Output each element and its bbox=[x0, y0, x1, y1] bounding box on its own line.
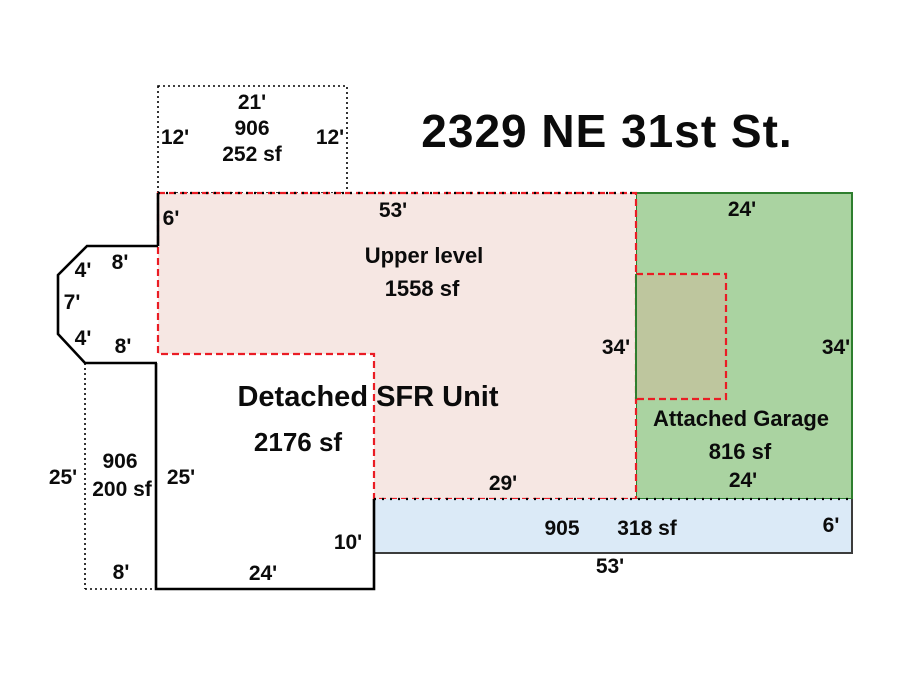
sfr-name: Detached SFR Unit bbox=[237, 381, 498, 413]
dim-sfr-bottom: 24' bbox=[249, 562, 277, 585]
dim-top-addition-left: 12' bbox=[161, 126, 189, 149]
dim-upper-left-offset: 6' bbox=[163, 207, 180, 230]
dim-bay-bottom-diag: 4' bbox=[75, 327, 92, 350]
dim-porch-bottom: 53' bbox=[596, 555, 624, 578]
upper-level-garage-overlap-region bbox=[636, 274, 726, 399]
dim-bay-bottom: 8' bbox=[115, 335, 132, 358]
dim-porch-right: 6' bbox=[823, 514, 840, 537]
upper-level-name: Upper level bbox=[365, 243, 484, 268]
porch-code: 905 bbox=[544, 517, 579, 540]
dim-bay-top-diag: 4' bbox=[75, 259, 92, 282]
garage-area: 816 sf bbox=[709, 439, 772, 464]
dim-garage-bottom: 24' bbox=[729, 469, 757, 492]
dim-left-addition-outside: 25' bbox=[49, 466, 77, 489]
dim-garage-top: 24' bbox=[728, 198, 756, 221]
dim-sfr-right: 10' bbox=[334, 531, 362, 554]
addition-906-left-region bbox=[85, 363, 156, 589]
porch-area: 318 sf bbox=[617, 517, 678, 540]
dim-garage-right: 34' bbox=[822, 336, 850, 359]
dim-bay-top: 8' bbox=[112, 251, 129, 274]
sketch-svg: 2329 NE 31st St. 21' 906 252 sf 12' 12' … bbox=[0, 0, 900, 675]
upper-level-area: 1558 sf bbox=[385, 276, 460, 301]
left-addition-code: 906 bbox=[102, 450, 137, 473]
sfr-area: 2176 sf bbox=[254, 427, 343, 457]
dim-top-addition-right: 12' bbox=[316, 126, 344, 149]
top-addition-area: 252 sf bbox=[222, 143, 283, 166]
dim-upper-top: 53' bbox=[379, 199, 407, 222]
dim-left-addition-bottom: 8' bbox=[113, 561, 130, 584]
dim-upper-bottom: 29' bbox=[489, 472, 517, 495]
page-title: 2329 NE 31st St. bbox=[421, 105, 792, 157]
top-addition-code: 906 bbox=[234, 117, 269, 140]
dim-upper-right: 34' bbox=[602, 336, 630, 359]
floor-plan-sketch: 2329 NE 31st St. 21' 906 252 sf 12' 12' … bbox=[0, 0, 900, 675]
garage-name: Attached Garage bbox=[653, 406, 829, 431]
dim-bay-left: 7' bbox=[64, 291, 81, 314]
upper-level-region bbox=[158, 193, 636, 499]
left-addition-area: 200 sf bbox=[92, 478, 153, 501]
dim-top-addition-width: 21' bbox=[238, 91, 266, 114]
porch-905-region bbox=[374, 499, 852, 553]
dim-sfr-left: 25' bbox=[167, 466, 195, 489]
